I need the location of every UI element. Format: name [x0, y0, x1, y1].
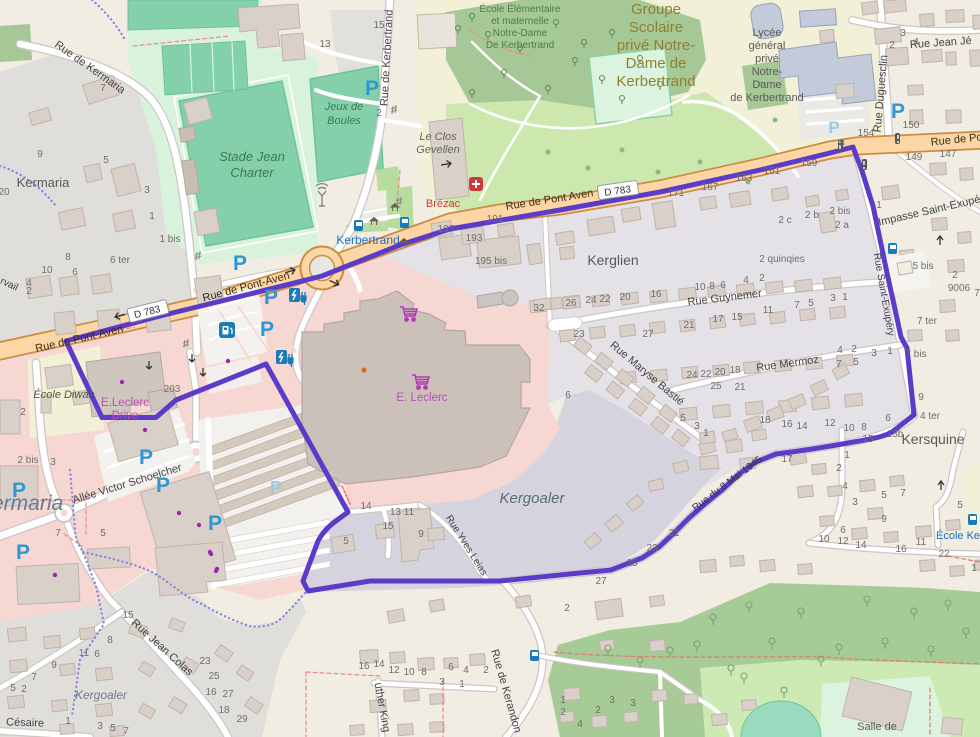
- svg-text:5: 5: [957, 500, 963, 511]
- svg-text:Boules: Boules: [327, 115, 361, 127]
- svg-text:27: 27: [222, 689, 234, 700]
- svg-text:5: 5: [881, 490, 887, 501]
- svg-text:6: 6: [448, 662, 454, 673]
- svg-text:191: 191: [487, 214, 504, 225]
- svg-text:Stade Jean: Stade Jean: [219, 149, 285, 164]
- svg-text:Salle de: Salle de: [857, 721, 897, 733]
- svg-text:2: 2: [952, 270, 958, 281]
- svg-text:8: 8: [421, 667, 427, 678]
- svg-text:3: 3: [694, 421, 700, 432]
- svg-text:3: 3: [830, 293, 836, 304]
- svg-text:2: 2: [851, 344, 857, 355]
- svg-text:193: 193: [466, 233, 483, 244]
- svg-text:2: 2: [483, 665, 489, 676]
- svg-text:4: 4: [743, 275, 749, 286]
- svg-text:12: 12: [388, 665, 400, 676]
- svg-text:5: 5: [808, 298, 814, 309]
- svg-text:22: 22: [938, 549, 950, 560]
- svg-text:Scolaire: Scolaire: [629, 19, 683, 36]
- svg-text:8: 8: [839, 138, 845, 149]
- svg-text:11: 11: [79, 648, 90, 659]
- svg-text:4: 4: [913, 37, 919, 48]
- svg-text:Groupe: Groupe: [631, 1, 681, 18]
- svg-text:2: 2: [759, 273, 765, 284]
- svg-text:154: 154: [858, 128, 875, 139]
- svg-text:2: 2: [560, 707, 566, 718]
- svg-text:20: 20: [619, 292, 631, 303]
- svg-text:2: 2: [595, 705, 601, 716]
- svg-text:2: 2: [889, 40, 895, 51]
- svg-text:P: P: [16, 541, 30, 564]
- svg-text:15: 15: [862, 434, 874, 445]
- svg-text:Gevellen: Gevellen: [416, 144, 459, 156]
- svg-text:E.Leclerc: E.Leclerc: [101, 397, 149, 409]
- svg-text:3: 3: [144, 185, 150, 196]
- svg-text:P: P: [264, 286, 278, 309]
- svg-text:7: 7: [100, 83, 106, 94]
- svg-text:1: 1: [887, 346, 893, 357]
- svg-text:11: 11: [763, 305, 774, 316]
- svg-text:23: 23: [573, 329, 585, 340]
- svg-text:8: 8: [65, 252, 71, 263]
- svg-text:12: 12: [824, 418, 836, 429]
- svg-text:6 ter: 6 ter: [110, 255, 131, 266]
- svg-text:16: 16: [358, 661, 370, 672]
- svg-text:Dame de: Dame de: [626, 55, 687, 72]
- svg-text:5: 5: [103, 155, 109, 166]
- svg-text:6: 6: [94, 649, 100, 660]
- svg-text:27: 27: [642, 329, 654, 340]
- svg-text:2: 2: [26, 286, 32, 297]
- svg-text:P: P: [208, 512, 222, 535]
- svg-text:2: 2: [376, 108, 382, 119]
- svg-text:16: 16: [650, 289, 662, 300]
- svg-text:Drive: Drive: [112, 410, 139, 422]
- svg-text:2 c: 2 c: [778, 215, 791, 226]
- svg-text:159: 159: [801, 158, 818, 169]
- svg-text:7: 7: [55, 528, 61, 539]
- svg-text:7: 7: [900, 488, 906, 499]
- svg-text:4: 4: [577, 719, 583, 730]
- svg-text:17: 17: [781, 454, 793, 465]
- svg-text:5: 5: [343, 536, 349, 547]
- svg-text:21: 21: [683, 320, 695, 331]
- svg-text:1: 1: [842, 292, 848, 303]
- svg-text:9: 9: [881, 514, 887, 525]
- svg-text:7: 7: [974, 288, 980, 299]
- svg-text:7: 7: [123, 726, 129, 737]
- svg-text:21: 21: [668, 528, 680, 539]
- svg-text:Césaire: Césaire: [6, 716, 44, 729]
- svg-text:203: 203: [164, 384, 181, 395]
- svg-text:9006: 9006: [948, 283, 971, 294]
- svg-text:Kergoaler: Kergoaler: [499, 490, 565, 507]
- svg-text:Kersquine: Kersquine: [901, 431, 964, 447]
- svg-text:École Élémentaire: École Élémentaire: [479, 2, 561, 15]
- svg-text:20: 20: [0, 187, 10, 198]
- svg-text:11: 11: [916, 537, 927, 548]
- svg-text:22: 22: [599, 294, 611, 305]
- svg-text:1: 1: [971, 563, 977, 574]
- svg-text:Kermaria: Kermaria: [17, 175, 71, 190]
- svg-text:5: 5: [680, 413, 686, 424]
- svg-text:4: 4: [837, 345, 843, 356]
- svg-text:1: 1: [459, 679, 465, 690]
- svg-text:2 bis: 2 bis: [17, 455, 38, 466]
- svg-text:22: 22: [700, 369, 712, 380]
- svg-text:15: 15: [731, 312, 743, 323]
- svg-text:10: 10: [403, 667, 415, 678]
- svg-text:7 bis: 7 bis: [905, 349, 926, 360]
- svg-text:7 ter: 7 ter: [917, 316, 938, 327]
- svg-text:5: 5: [853, 357, 859, 368]
- svg-text:29: 29: [236, 714, 248, 725]
- svg-text:10: 10: [843, 423, 855, 434]
- svg-text:16: 16: [895, 544, 907, 555]
- svg-text:P: P: [270, 478, 282, 498]
- svg-text:163: 163: [736, 173, 753, 184]
- svg-text:150: 150: [903, 120, 920, 131]
- svg-text:3: 3: [630, 698, 636, 709]
- svg-text:2: 2: [21, 684, 27, 695]
- svg-text:24: 24: [585, 295, 597, 306]
- svg-text:195 bis: 195 bis: [475, 256, 507, 267]
- svg-text:6: 6: [885, 413, 891, 424]
- svg-text:27: 27: [595, 576, 607, 587]
- svg-text:P: P: [828, 118, 839, 137]
- svg-text:25: 25: [626, 558, 638, 569]
- svg-text:18: 18: [218, 705, 230, 716]
- svg-text:13 11: 13 11: [390, 507, 415, 518]
- svg-text:25: 25: [208, 671, 220, 682]
- svg-text:9: 9: [918, 392, 924, 403]
- svg-text:P: P: [139, 446, 153, 469]
- svg-text:3: 3: [871, 348, 877, 359]
- svg-text:8: 8: [709, 281, 715, 292]
- svg-text:21: 21: [734, 382, 746, 393]
- svg-text:1 bis: 1 bis: [159, 234, 180, 245]
- svg-text:13: 13: [319, 39, 331, 50]
- svg-text:1: 1: [149, 211, 155, 222]
- svg-text:15: 15: [382, 521, 394, 532]
- svg-text:18: 18: [729, 365, 741, 376]
- svg-text:P: P: [365, 77, 379, 100]
- svg-text:15: 15: [373, 20, 385, 31]
- svg-text:2 a: 2 a: [835, 220, 849, 231]
- svg-text:privé Notre-: privé Notre-: [617, 37, 695, 54]
- svg-text:7: 7: [794, 300, 800, 311]
- svg-text:8: 8: [861, 422, 867, 433]
- svg-text:De Kerbertrand: De Kerbertrand: [486, 40, 554, 51]
- svg-text:4 ter: 4 ter: [920, 411, 941, 422]
- svg-text:École Ker: École Ker: [936, 529, 980, 542]
- svg-text:20: 20: [714, 367, 726, 378]
- svg-text:3: 3: [97, 721, 103, 732]
- svg-text:32: 32: [533, 303, 545, 314]
- svg-text:10: 10: [41, 265, 53, 276]
- svg-text:Charter: Charter: [230, 165, 274, 180]
- svg-text:3: 3: [50, 457, 56, 468]
- svg-text:23: 23: [646, 543, 658, 554]
- svg-text:5: 5: [100, 528, 106, 539]
- svg-text:3: 3: [609, 695, 615, 706]
- svg-text:1: 1: [703, 428, 709, 439]
- svg-text:5: 5: [110, 723, 116, 734]
- svg-text:4: 4: [842, 481, 848, 492]
- svg-text:1: 1: [65, 716, 71, 727]
- svg-text:16: 16: [781, 419, 793, 430]
- svg-text:14: 14: [373, 659, 385, 670]
- svg-text:1: 1: [844, 450, 850, 461]
- svg-text:16: 16: [205, 687, 217, 698]
- svg-text:14: 14: [796, 421, 808, 432]
- svg-text:de Kerbertrand: de Kerbertrand: [730, 92, 803, 104]
- svg-text:Brézac: Brézac: [426, 198, 461, 210]
- svg-text:7: 7: [31, 672, 37, 683]
- svg-text:6: 6: [72, 267, 78, 278]
- svg-text:1: 1: [560, 695, 566, 706]
- svg-text:9: 9: [418, 529, 424, 540]
- svg-text:Notre-: Notre-: [752, 66, 783, 78]
- svg-text:171: 171: [668, 188, 685, 199]
- svg-text:26: 26: [565, 298, 577, 309]
- svg-text:6: 6: [720, 280, 726, 291]
- svg-text:Jeux de: Jeux de: [324, 101, 364, 113]
- svg-text:2 b: 2 b: [805, 210, 819, 221]
- svg-text:1: 1: [876, 200, 882, 211]
- svg-text:Kerbertrand: Kerbertrand: [336, 233, 399, 247]
- svg-text:6: 6: [840, 525, 846, 536]
- svg-text:23: 23: [199, 656, 211, 667]
- svg-text:14: 14: [855, 540, 867, 551]
- svg-text:149: 149: [906, 152, 923, 163]
- svg-text:10: 10: [694, 282, 706, 293]
- svg-text:197: 197: [438, 224, 455, 235]
- svg-text:15: 15: [122, 610, 134, 621]
- svg-text:161: 161: [764, 166, 781, 177]
- svg-text:P: P: [260, 318, 274, 341]
- svg-text:2 quinqies: 2 quinqies: [759, 254, 805, 265]
- svg-text:Kermaria: Kermaria: [0, 492, 63, 515]
- svg-text:12: 12: [837, 536, 849, 547]
- svg-text:Notre-Dame: Notre-Dame: [493, 28, 548, 39]
- svg-text:Lycée: Lycée: [753, 27, 782, 39]
- svg-text:2: 2: [836, 463, 842, 474]
- svg-text:14: 14: [360, 501, 372, 512]
- svg-text:E. Leclerc: E. Leclerc: [396, 392, 447, 404]
- svg-text:2: 2: [20, 407, 26, 418]
- svg-text:3: 3: [439, 677, 445, 688]
- svg-text:7: 7: [836, 359, 842, 370]
- svg-text:2 bis: 2 bis: [829, 206, 850, 217]
- svg-text:5: 5: [10, 683, 16, 694]
- svg-text:Kerglien: Kerglien: [587, 252, 638, 268]
- svg-text:P: P: [233, 252, 247, 275]
- svg-text:9: 9: [37, 149, 43, 160]
- svg-text:École Diwan: École Diwan: [33, 388, 94, 401]
- svg-text:général: général: [749, 40, 786, 52]
- svg-text:Dame: Dame: [752, 79, 781, 91]
- svg-text:4: 4: [463, 665, 469, 676]
- svg-text:5 bis: 5 bis: [912, 261, 933, 272]
- svg-text:9: 9: [51, 660, 57, 671]
- svg-text:25: 25: [710, 381, 722, 392]
- svg-text:Kergoaler: Kergoaler: [75, 688, 128, 702]
- svg-text:Le Clos: Le Clos: [419, 131, 457, 143]
- svg-text:18: 18: [759, 415, 771, 426]
- svg-text:13b: 13b: [887, 429, 904, 440]
- svg-text:8: 8: [107, 635, 113, 646]
- svg-text:17: 17: [712, 314, 724, 325]
- svg-text:24: 24: [686, 370, 698, 381]
- svg-text:2: 2: [564, 603, 570, 614]
- svg-text:et maternelle: et maternelle: [491, 16, 549, 27]
- svg-text:147: 147: [940, 149, 957, 160]
- svg-text:10: 10: [818, 534, 830, 545]
- svg-text:Kerbertrand: Kerbertrand: [616, 73, 695, 90]
- svg-text:privé: privé: [755, 53, 779, 65]
- svg-text:6: 6: [565, 390, 571, 401]
- svg-text:3: 3: [852, 497, 858, 508]
- svg-text:167: 167: [702, 182, 719, 193]
- svg-text:3: 3: [900, 28, 906, 39]
